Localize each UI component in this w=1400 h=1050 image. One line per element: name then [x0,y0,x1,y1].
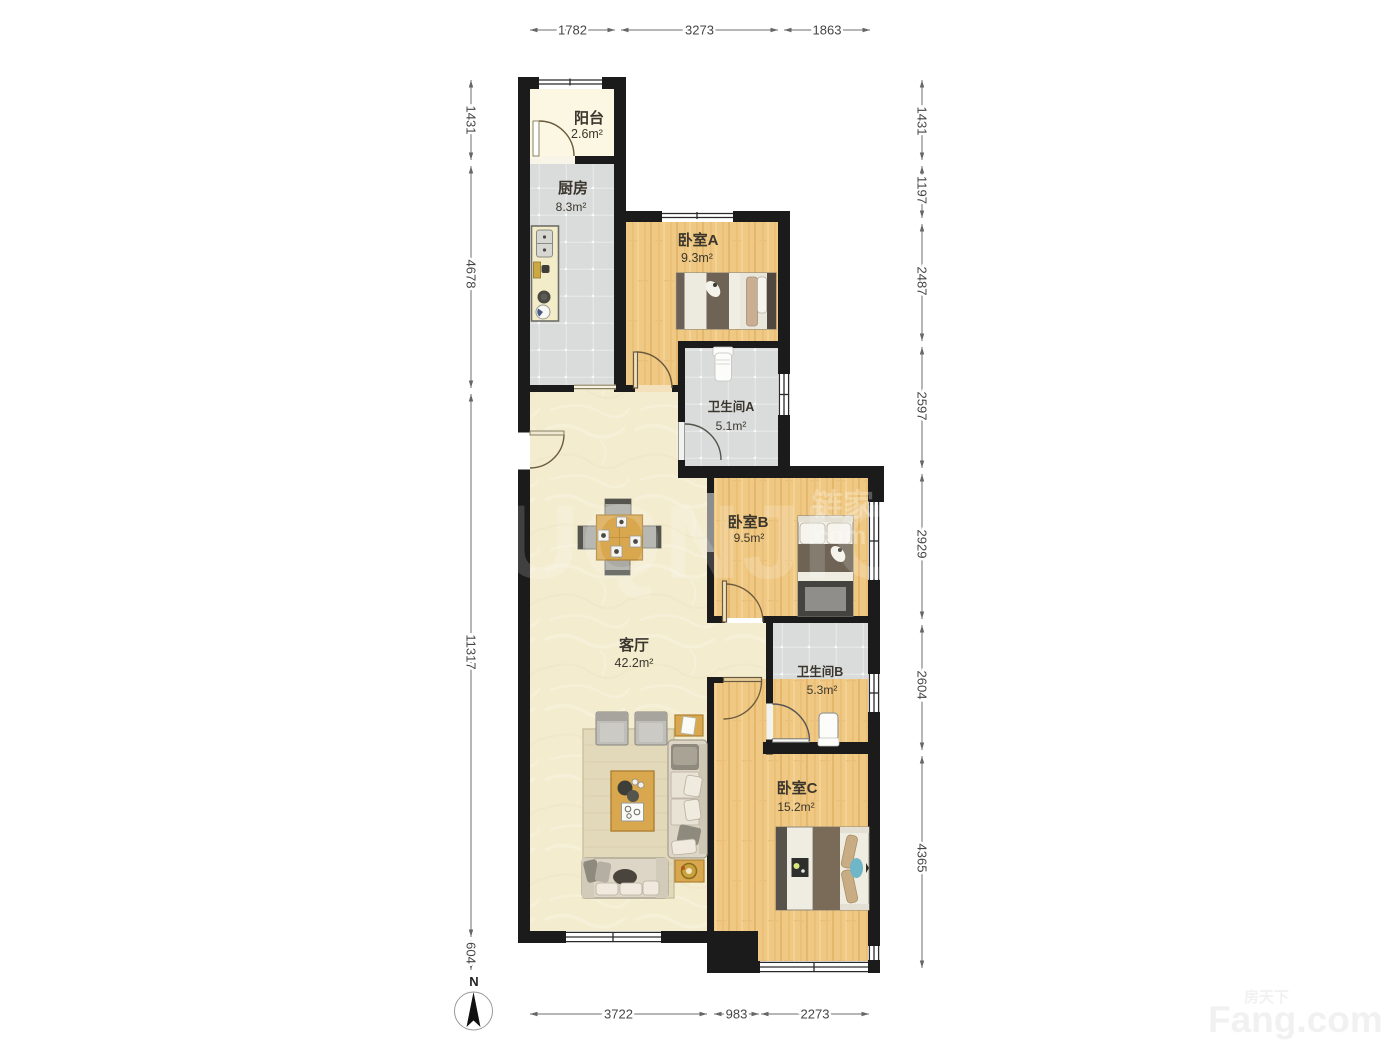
svg-text:2.6m²: 2.6m² [571,127,603,141]
svg-text:卧室A: 卧室A [678,231,719,249]
svg-text:15.2m²: 15.2m² [777,800,814,814]
svg-text:厨房: 厨房 [558,179,588,197]
svg-text:11317: 11317 [464,634,479,669]
svg-text:2273: 2273 [801,1007,830,1022]
svg-text:卫生间B: 卫生间B [797,664,844,679]
svg-text:9.3m²: 9.3m² [681,251,713,265]
svg-text:983: 983 [726,1007,748,1022]
svg-text:4365: 4365 [915,844,930,873]
svg-text:客厅: 客厅 [618,636,649,654]
svg-text:1863: 1863 [813,23,842,38]
svg-text:3273: 3273 [685,23,714,38]
svg-text:1431: 1431 [915,107,930,136]
svg-text:4678: 4678 [464,260,479,289]
svg-text:Fang.com: Fang.com [1208,999,1383,1040]
svg-text:.com: .com [808,522,866,550]
svg-text:1197: 1197 [915,176,930,204]
svg-text:5.1m²: 5.1m² [716,419,747,433]
svg-text:9.5m²: 9.5m² [734,531,765,545]
svg-text:3722: 3722 [604,1007,633,1022]
svg-text:1782: 1782 [558,23,587,38]
svg-text:N: N [469,974,478,989]
svg-text:2597: 2597 [915,392,930,421]
svg-text:卧室C: 卧室C [777,779,818,797]
svg-text:阳台: 阳台 [574,109,604,127]
svg-text:2487: 2487 [915,267,930,296]
svg-text:链家: 链家 [812,488,874,523]
svg-text:604: 604 [464,942,479,964]
svg-text:卫生间A: 卫生间A [708,399,755,414]
svg-text:8.3m²: 8.3m² [556,200,587,214]
svg-text:42.2m²: 42.2m² [615,656,654,670]
svg-text:2604: 2604 [915,671,930,700]
svg-text:1431: 1431 [464,106,479,135]
svg-text:5.3m²: 5.3m² [807,683,838,697]
svg-text:卧室B: 卧室B [728,513,769,531]
